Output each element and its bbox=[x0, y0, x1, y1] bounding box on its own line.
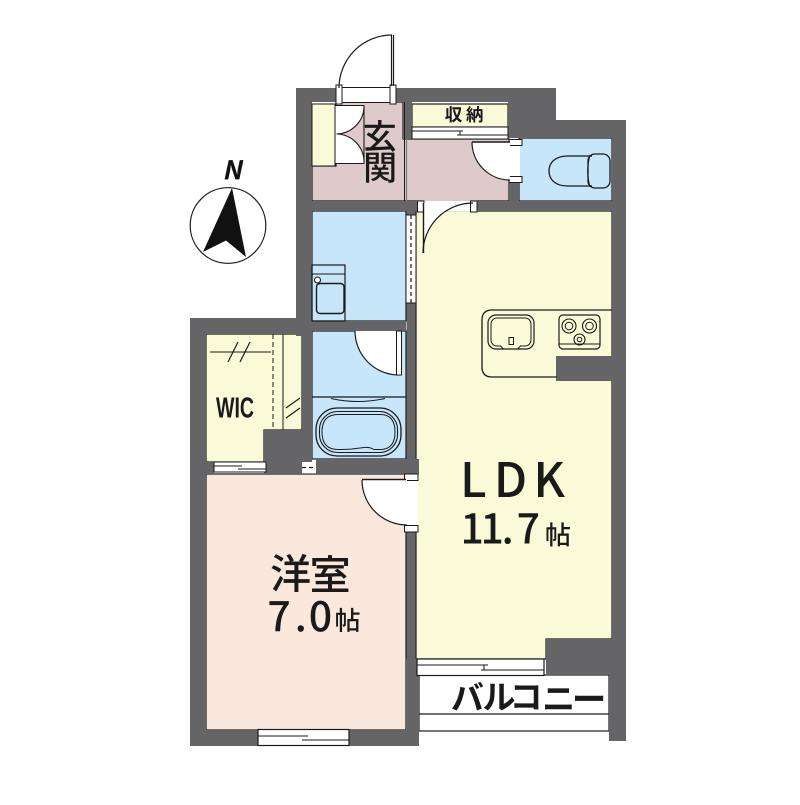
svg-text:WIC: WIC bbox=[216, 392, 254, 424]
